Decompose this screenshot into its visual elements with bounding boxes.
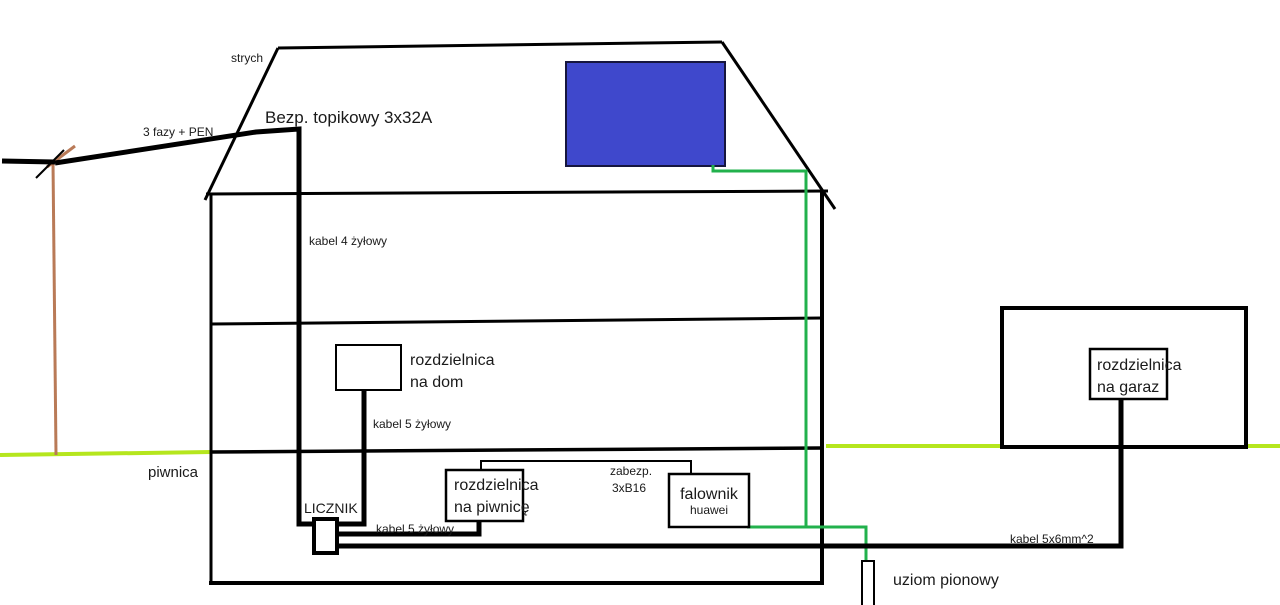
breaker-label-line1: zabezp. (610, 464, 652, 478)
riser-cable-label: kabel 4 żyłowy (309, 234, 387, 248)
inverter-label-line1: falownik (680, 486, 739, 503)
meter-label: LICZNIK (304, 500, 358, 516)
ground-rod-label: uziom pionowy (893, 572, 999, 589)
garage-panel-label-line2: na garaz (1097, 379, 1159, 396)
electrical-diagram: strych 3 fazy + PEN Bezp. topikowy 3x32A… (0, 0, 1280, 605)
inverter-label-line2: huawei (690, 503, 728, 517)
main-fuse-label: Bezp. topikowy 3x32A (265, 108, 433, 127)
garage-panel-label-line1: rozdzielnica (1097, 357, 1182, 374)
basement-ceiling-line (211, 448, 822, 452)
garage-cable-label: kabel 5x6mm^2 (1010, 532, 1094, 546)
roof-right-slope (722, 42, 835, 209)
attic-label: strych (231, 51, 263, 65)
utility-pole (53, 162, 56, 455)
breaker-label-line2: 3xB16 (612, 481, 646, 495)
diagram-canvas: strych 3 fazy + PEN Bezp. topikowy 3x32A… (0, 0, 1280, 605)
ground-line-left (0, 452, 211, 455)
basement-panel-label-line2: na piwnicę (454, 499, 530, 516)
pv-panel (566, 62, 725, 166)
house-panel-label-line2: na dom (410, 374, 463, 391)
supply-line-label: 3 fazy + PEN (143, 125, 213, 139)
basement-label: piwnica (148, 464, 199, 481)
ground-rod (862, 561, 874, 605)
house-floor-line (211, 318, 822, 324)
roof-ridge (278, 42, 722, 48)
supply-wire-left (2, 161, 55, 162)
house-panel-box (336, 345, 401, 390)
basement-panel-cable-label: kabel 5 żyłowy (376, 522, 454, 536)
house-panel-cable-label: kabel 5 żyłowy (373, 417, 451, 431)
basement-panel-label-line1: rozdzielnica (454, 477, 539, 494)
meter-box (314, 519, 337, 553)
house-panel-label-line1: rozdzielnica (410, 352, 495, 369)
